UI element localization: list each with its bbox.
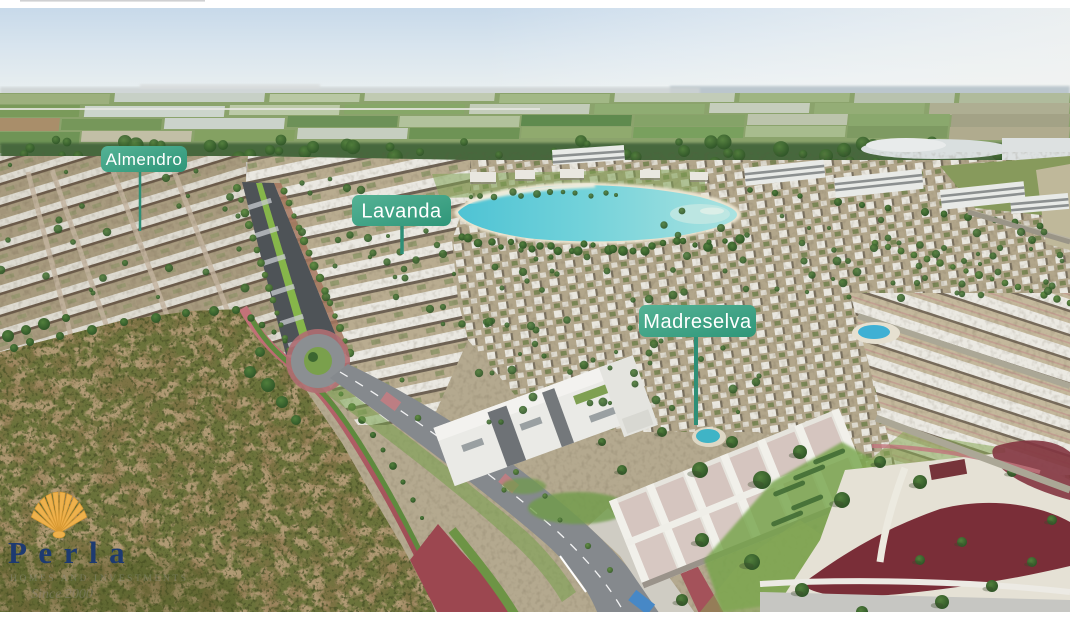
svg-text:Madreselva: Madreselva <box>643 311 752 333</box>
svg-text:Almendro: Almendro <box>106 150 183 169</box>
svg-text:Since 2000: Since 2000 <box>31 587 93 602</box>
svg-text:HOMES AND INVESTMENTS: HOMES AND INVESTMENTS <box>10 574 189 584</box>
svg-text:Lavanda: Lavanda <box>361 201 442 223</box>
svg-text:Perla: Perla <box>8 535 136 570</box>
